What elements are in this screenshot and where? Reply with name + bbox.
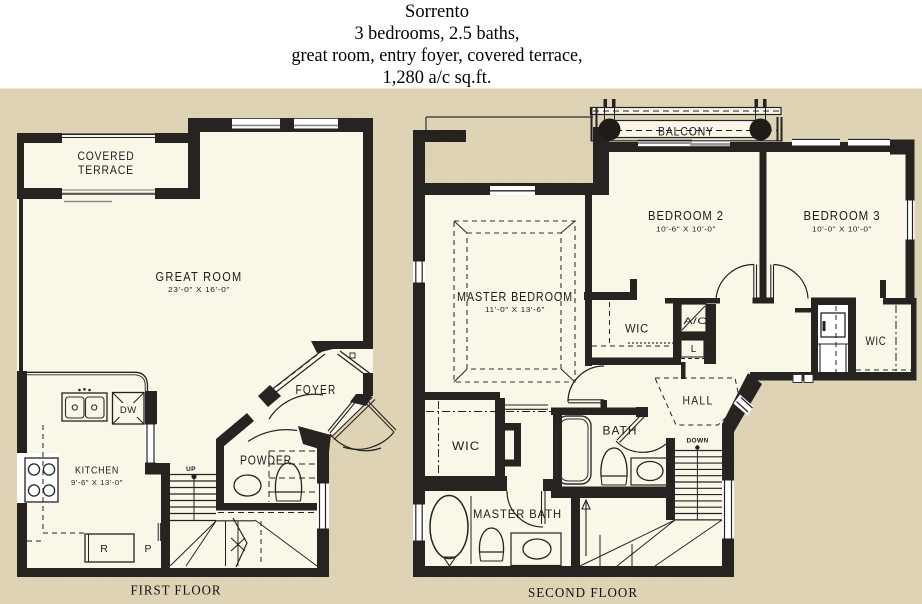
svg-text:1,280 a/c sq.ft.: 1,280 a/c sq.ft. — [383, 67, 492, 88]
svg-text:FIRST FLOOR: FIRST FLOOR — [131, 583, 222, 598]
svg-text:9'-6" X 13'-0": 9'-6" X 13'-0" — [71, 478, 123, 487]
svg-text:R: R — [100, 543, 108, 555]
svg-text:23'-0" X 16'-0": 23'-0" X 16'-0" — [168, 285, 230, 294]
svg-text:DOWN: DOWN — [687, 438, 709, 445]
svg-text:HALL: HALL — [683, 394, 714, 408]
svg-text:10'-6" X 10'-0": 10'-6" X 10'-0" — [656, 225, 716, 234]
svg-text:A/C: A/C — [684, 316, 708, 327]
svg-text:COVERED: COVERED — [78, 149, 135, 163]
svg-text:DW: DW — [120, 405, 137, 416]
svg-text:GREAT ROOM: GREAT ROOM — [156, 269, 243, 284]
svg-text:MASTER BEDROOM: MASTER BEDROOM — [457, 290, 573, 304]
svg-text:KITCHEN: KITCHEN — [75, 465, 119, 477]
svg-text:BEDROOM 2: BEDROOM 2 — [648, 209, 724, 223]
svg-text:POWDER: POWDER — [240, 454, 292, 468]
svg-text:great room, entry foyer, cover: great room, entry foyer, covered terrace… — [292, 45, 583, 66]
svg-text:BALCONY: BALCONY — [658, 127, 714, 139]
svg-text:P: P — [144, 543, 151, 555]
svg-text:FOYER: FOYER — [296, 383, 337, 397]
svg-text:10'-0" X 10'-0": 10'-0" X 10'-0" — [812, 225, 872, 234]
svg-text:BEDROOM 3: BEDROOM 3 — [804, 209, 881, 223]
svg-text:BATH: BATH — [603, 426, 638, 438]
svg-text:TERRACE: TERRACE — [78, 163, 134, 177]
svg-text:UP: UP — [186, 466, 196, 473]
svg-text:Sorrento: Sorrento — [405, 1, 469, 22]
svg-text:11'-0" X 13'-6": 11'-0" X 13'-6" — [485, 305, 545, 314]
svg-text:WIC: WIC — [866, 336, 887, 348]
svg-text:L: L — [691, 344, 697, 355]
svg-text:SECOND FLOOR: SECOND FLOOR — [528, 585, 638, 600]
svg-text:MASTER BATH: MASTER BATH — [473, 507, 562, 521]
svg-text:WIC: WIC — [452, 441, 480, 453]
svg-text:WIC: WIC — [625, 324, 649, 336]
svg-text:3 bedrooms, 2.5 baths,: 3 bedrooms, 2.5 baths, — [355, 23, 520, 44]
